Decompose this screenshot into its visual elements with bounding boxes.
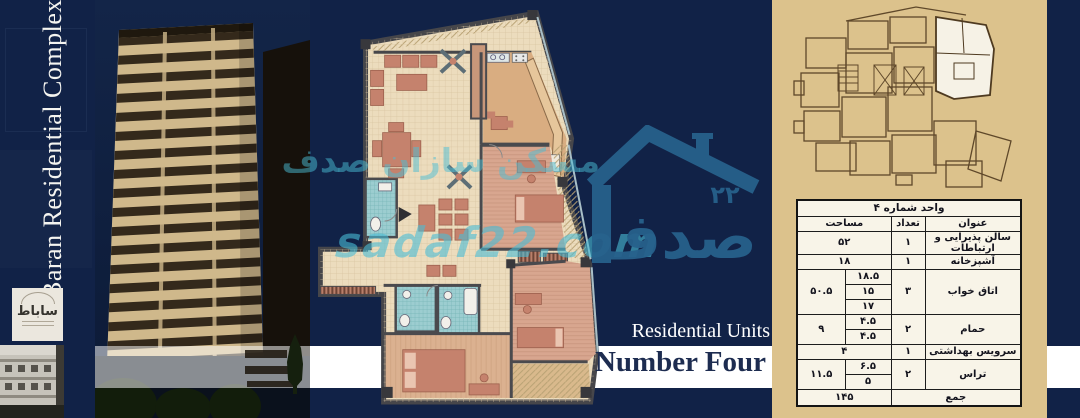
- table-cell: ۶.۵: [845, 359, 891, 374]
- watermark-brand-fa: مسکن سازان صدف: [334, 141, 600, 180]
- table-row: حمام۲۴.۵۹: [797, 314, 1021, 329]
- chimney-icon: [696, 137, 709, 161]
- kitchen-divider: [471, 44, 486, 118]
- card-divider: [22, 321, 54, 326]
- table-cell: سرویس بهداشتی: [925, 344, 1021, 359]
- floor-key-plan: [786, 3, 1032, 196]
- table-cell: عنوان: [925, 216, 1021, 231]
- roof-icon: [592, 133, 756, 187]
- bedroom-2: [511, 261, 595, 362]
- table-cell: ۱: [891, 231, 925, 254]
- residential-units-label: Residential Units: [632, 320, 770, 343]
- table-title-row: واحد شماره ۴: [797, 200, 1021, 216]
- table-header-row: عنوانتعدادمساحت: [797, 216, 1021, 231]
- table-cell: مساحت: [797, 216, 891, 231]
- unit-table-wrap: واحد شماره ۴عنوانتعدادمساحتسالن پذیرایی …: [796, 199, 1022, 407]
- sadaf-house-logo: ۲۲ صدف: [586, 125, 762, 271]
- table-cell: ۵: [845, 374, 891, 389]
- arch-sketch: [21, 292, 55, 304]
- unit-number-label: Number Four: [595, 346, 766, 379]
- tree-silhouette: [283, 334, 307, 394]
- table-row: تراس۲۶.۵۱۱.۵: [797, 359, 1021, 374]
- table-cell: حمام: [925, 314, 1021, 344]
- table-total-row: جمع۱۴۵: [797, 389, 1021, 406]
- terrace: [511, 364, 590, 398]
- table-cell: ۱: [891, 254, 925, 269]
- table-cell: آشپزخانه: [925, 254, 1021, 269]
- table-cell: سالن پذیرایی و ارتباطات: [925, 231, 1021, 254]
- table-row: اتاق خواب۳۱۸.۵۵۰.۵: [797, 269, 1021, 284]
- unit-table: واحد شماره ۴عنوانتعدادمساحتسالن پذیرایی …: [796, 199, 1022, 407]
- lowrise-photo: [0, 345, 64, 418]
- table-cell: ۳: [891, 269, 925, 314]
- table-cell: ۱۴۵: [797, 389, 891, 406]
- table-cell: ۴.۵: [845, 329, 891, 344]
- complex-title: Baran Residential Complex: [38, 1, 78, 299]
- bathroom-left: [396, 285, 436, 331]
- table-cell: ۴.۵: [845, 314, 891, 329]
- table-cell: ۴: [797, 344, 891, 359]
- table-cell: تراس: [925, 359, 1021, 389]
- highlighted-unit: [936, 17, 994, 99]
- table-cell: ۱: [891, 344, 925, 359]
- table-cell: ۱۱.۵: [797, 359, 845, 389]
- table-cell: ۱۵: [845, 284, 891, 299]
- bathroom-right: [438, 285, 479, 333]
- table-cell: اتاق خواب: [925, 269, 1021, 314]
- table-cell: تعداد: [891, 216, 925, 231]
- table-cell: واحد شماره ۴: [797, 200, 1021, 216]
- wing-railing: [320, 286, 375, 294]
- table-cell: ۱۷: [845, 299, 891, 314]
- brochure-page: ساباط Baran Residential Complex: [0, 0, 1080, 418]
- table-cell: ۵۲: [797, 231, 891, 254]
- logo-wordmark: صدف: [589, 200, 757, 271]
- table-row: سالن پذیرایی و ارتباطات۱۵۲: [797, 231, 1021, 254]
- table-cell: ۹: [797, 314, 845, 344]
- info-panel: واحد شماره ۴عنوانتعدادمساحتسالن پذیرایی …: [772, 0, 1047, 418]
- table-cell: جمع: [891, 389, 1021, 406]
- master-bedroom: [386, 334, 512, 398]
- table-row: سرویس بهداشتی۱۴: [797, 344, 1021, 359]
- table-cell: ۲: [891, 314, 925, 344]
- developer-logo-card: ساباط: [12, 288, 63, 341]
- table-cell: ۵۰.۵: [797, 269, 845, 314]
- unit-floor-plan: [318, 8, 602, 410]
- table-row: آشپزخانه۱۱۸: [797, 254, 1021, 269]
- tower-photo: [95, 0, 310, 418]
- table-cell: ۱۸.۵: [845, 269, 891, 284]
- table-cell: ۱۸: [797, 254, 891, 269]
- developer-name: ساباط: [12, 304, 63, 320]
- table-cell: ۲: [891, 359, 925, 389]
